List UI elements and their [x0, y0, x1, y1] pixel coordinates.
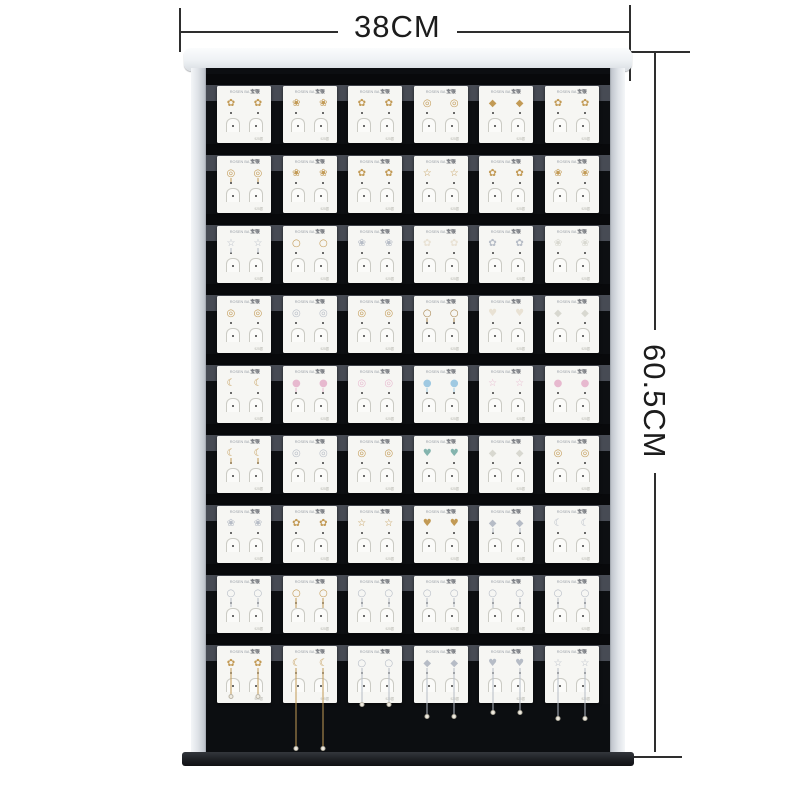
- earring-back-slot: [511, 328, 525, 342]
- card-brand-label: ROSEN BA 宝银: [360, 649, 390, 655]
- earring-left: ♥: [487, 658, 499, 674]
- earring-back-slots: [226, 468, 263, 482]
- card-footnote: 925银: [582, 417, 590, 422]
- earring-left: ❀: [290, 98, 302, 114]
- earring-back-slot: [357, 468, 371, 482]
- earring-dangle: [323, 668, 324, 746]
- earring-pair: ◎ ◎: [225, 168, 264, 184]
- earring-glyph: ❀: [319, 98, 327, 109]
- earring-right: ☆: [252, 238, 264, 254]
- earring-pair: ◎ ◎: [290, 308, 329, 324]
- card-footnote: 925银: [255, 417, 263, 422]
- pin-hole: [257, 392, 259, 394]
- card-brand-label: ROSEN BA 宝银: [557, 229, 587, 235]
- earring-glyph: ✿: [358, 98, 366, 109]
- earring-left: ✿: [225, 658, 237, 674]
- earring-right: ✿: [252, 98, 264, 114]
- earring-left: ●: [421, 378, 433, 394]
- pin-hole: [388, 532, 390, 534]
- earring-back-slots: [291, 538, 328, 552]
- pin-hole: [230, 322, 232, 324]
- card-footnote: 925银: [255, 487, 263, 492]
- earring-card: ROSEN BA 宝银 ☆ ☆ 925银: [545, 646, 599, 703]
- earring-back-slots: [357, 608, 394, 622]
- earring-back-slots: [488, 188, 525, 202]
- pin-hole: [453, 322, 455, 324]
- card-footnote: 925银: [451, 137, 459, 142]
- earring-card: ROSEN BA 宝银 ✿ ✿ 925银: [479, 226, 533, 283]
- card-row: ROSEN BA 宝银 ☾ ☾ 925银 ROSEN BA 宝银 ●: [206, 354, 610, 424]
- card-brand-label: ROSEN BA 宝银: [426, 509, 456, 515]
- card-footnote: 925银: [516, 557, 524, 562]
- earring-back-slot: [314, 538, 328, 552]
- earring-back-slot: [314, 328, 328, 342]
- pin-hole: [557, 322, 559, 324]
- stand-right-rail: [610, 68, 625, 752]
- earring-right: ◆: [514, 98, 526, 114]
- earring-card: ROSEN BA 宝银 ◆ ◆ 925银: [479, 506, 533, 563]
- earring-back-slot: [422, 398, 436, 412]
- earring-left: ♥: [421, 518, 433, 534]
- earring-back-slot: [445, 188, 459, 202]
- card-brand-label: ROSEN BA 宝银: [557, 159, 587, 165]
- earring-back-slot: [511, 398, 525, 412]
- earring-card: ROSEN BA 宝银 ☆ ☆ 925银: [479, 366, 533, 423]
- earring-glyph: ◎: [319, 448, 328, 459]
- earring-back-slots: [357, 188, 394, 202]
- earring-card: ROSEN BA 宝银 ❀ ❀ 925银: [348, 226, 402, 283]
- earring-glyph: ❀: [554, 168, 562, 179]
- earring-back-slot: [488, 538, 502, 552]
- earring-left: ◆: [552, 308, 564, 324]
- card-brand-label: ROSEN BA 宝银: [229, 439, 259, 445]
- earring-left: ✿: [552, 98, 564, 114]
- earring-right: ✿: [514, 238, 526, 254]
- card-footnote: 925银: [320, 557, 328, 562]
- earring-back-slots: [422, 118, 459, 132]
- earring-pair: ◆ ◆: [487, 98, 526, 114]
- earring-back-slot: [511, 188, 525, 202]
- earring-right: ○: [579, 588, 591, 604]
- earring-card: ROSEN BA 宝银 ♥ ♥ 925银: [479, 296, 533, 353]
- earring-back-slot: [249, 468, 263, 482]
- product-photo: 38CM 60.5CM ROSEN BA 宝银 ✿ ✿ 925银: [0, 0, 800, 800]
- earring-right: ❀: [317, 98, 329, 114]
- pin-hole: [388, 322, 390, 324]
- earring-back-slot: [488, 398, 502, 412]
- earring-pair: ♥ ♥: [487, 658, 526, 674]
- earring-pair: ◆ ◆: [487, 448, 526, 464]
- pin-hole: [453, 252, 455, 254]
- dangle-pearl-tip: [228, 694, 233, 699]
- earring-pair: ☆ ☆: [225, 238, 264, 254]
- earring-glyph: ◎: [450, 98, 459, 109]
- earring-dangle: [296, 598, 297, 608]
- earring-back-slot: [226, 538, 240, 552]
- earring-back-slot: [249, 538, 263, 552]
- pin-hole: [322, 462, 324, 464]
- dangle-pearl-tip: [294, 746, 299, 751]
- earring-left: ✿: [356, 98, 368, 114]
- card-brand-label: ROSEN BA 宝银: [360, 369, 390, 375]
- card-brand-label: ROSEN BA 宝银: [360, 439, 390, 445]
- card-footnote: 925银: [451, 207, 459, 212]
- earring-glyph: ◎: [357, 448, 366, 459]
- earring-glyph: ◎: [554, 448, 563, 459]
- earring-back-slot: [226, 258, 240, 272]
- earring-pair: ◎ ◎: [356, 378, 395, 394]
- earring-back-slot: [357, 258, 371, 272]
- card-footnote: 925银: [255, 137, 263, 142]
- earring-back-slot: [226, 678, 240, 692]
- earring-back-slot: [357, 188, 371, 202]
- earring-left: ●: [552, 378, 564, 394]
- earring-left: ○: [421, 588, 433, 604]
- card-brand-label: ROSEN BA 宝银: [491, 649, 521, 655]
- card-footnote: 925银: [385, 627, 393, 632]
- earring-right: ✿: [448, 238, 460, 254]
- card-footnote: 925银: [451, 487, 459, 492]
- earring-back-slots: [422, 258, 459, 272]
- earring-back-slot: [422, 258, 436, 272]
- card-row: ROSEN BA 宝银 ❀ ❀ 925银 ROSEN BA 宝银 ✿: [206, 494, 610, 564]
- earring-card: ROSEN BA 宝银 ✿ ✿ 925银: [217, 86, 271, 143]
- card-row: ROSEN BA 宝银 ○ ○ 925银 ROSEN BA 宝银 ○: [206, 564, 610, 634]
- earring-right: ♥: [514, 308, 526, 324]
- card-brand-label: ROSEN BA 宝银: [557, 579, 587, 585]
- earring-right: ☾: [579, 518, 591, 534]
- earring-right: ○: [383, 658, 395, 674]
- earring-left: ✿: [421, 238, 433, 254]
- earring-glyph: ☆: [450, 168, 459, 179]
- pin-hole: [453, 112, 455, 114]
- earring-card: ROSEN BA 宝银 ☾ ☾ 925银: [217, 436, 271, 493]
- earring-right: ○: [252, 588, 264, 604]
- card-brand-label: ROSEN BA 宝银: [295, 649, 325, 655]
- earring-back-slot: [291, 678, 305, 692]
- earring-back-slots: [291, 608, 328, 622]
- earring-left: ◎: [356, 308, 368, 324]
- earring-right: ✿: [383, 98, 395, 114]
- earring-right: ○: [448, 308, 460, 324]
- earring-glyph: ○: [319, 238, 328, 249]
- earring-dangle: [427, 668, 428, 714]
- earring-glyph: ✿: [488, 238, 496, 249]
- card-footnote: 925银: [320, 697, 328, 702]
- earring-card: ROSEN BA 宝银 ● ● 925银: [414, 366, 468, 423]
- earring-glyph: ◆: [489, 448, 497, 459]
- pin-hole: [426, 322, 428, 324]
- earring-dangle: [492, 598, 493, 608]
- earring-right: ❀: [579, 168, 591, 184]
- earring-left: ☾: [225, 448, 237, 464]
- earring-right: ☆: [448, 168, 460, 184]
- earring-pair: ♥ ♥: [487, 308, 526, 324]
- pin-hole: [453, 392, 455, 394]
- card-footnote: 925银: [385, 697, 393, 702]
- earring-left: ✿: [225, 98, 237, 114]
- earring-back-slots: [488, 398, 525, 412]
- card-footnote: 925银: [582, 697, 590, 702]
- pin-hole: [453, 462, 455, 464]
- pin-hole: [519, 392, 521, 394]
- earring-glyph: ❀: [581, 238, 589, 249]
- earring-back-slot: [422, 468, 436, 482]
- earring-left: ◆: [487, 518, 499, 534]
- earring-back-slot: [314, 468, 328, 482]
- earring-back-slots: [553, 608, 590, 622]
- earring-glyph: ◎: [384, 448, 393, 459]
- earring-card: ROSEN BA 宝银 ◆ ◆ 925银: [479, 86, 533, 143]
- earring-back-slot: [488, 258, 502, 272]
- card-footnote: 925银: [385, 417, 393, 422]
- earring-card: ROSEN BA 宝银 ✿ ✿ 925银: [217, 646, 271, 703]
- card-footnote: 925银: [516, 207, 524, 212]
- earring-back-slots: [357, 258, 394, 272]
- earring-back-slots: [488, 538, 525, 552]
- earring-pair: ◆ ◆: [487, 518, 526, 534]
- earring-back-slots: [357, 538, 394, 552]
- earring-back-slot: [488, 328, 502, 342]
- card-footnote: 925银: [516, 417, 524, 422]
- earring-pair: ○ ○: [290, 238, 329, 254]
- pin-hole: [322, 532, 324, 534]
- card-footnote: 925银: [320, 207, 328, 212]
- earring-card: ROSEN BA 宝银 ◎ ◎ 925银: [348, 436, 402, 493]
- earring-back-slot: [226, 398, 240, 412]
- card-brand-label: ROSEN BA 宝银: [295, 159, 325, 165]
- pin-hole: [230, 182, 232, 184]
- earring-pair: ✿ ✿: [290, 518, 329, 534]
- earring-right: ☆: [514, 378, 526, 394]
- earring-back-slot: [226, 608, 240, 622]
- card-footnote: 925银: [320, 417, 328, 422]
- earring-left: ✿: [487, 168, 499, 184]
- earring-right: ○: [317, 588, 329, 604]
- earring-left: ❀: [552, 168, 564, 184]
- card-footnote: 925银: [320, 277, 328, 282]
- dangle-pearl-tip: [452, 714, 457, 719]
- earring-back-slots: [553, 258, 590, 272]
- earring-dangle: [427, 318, 428, 322]
- earring-back-slots: [357, 398, 394, 412]
- earring-glyph: ☆: [423, 168, 432, 179]
- card-row: ROSEN BA 宝银 ✿ ✿ 925银 ROSEN BA 宝银 ☾: [206, 634, 610, 704]
- earring-back-slot: [291, 398, 305, 412]
- earring-back-slots: [291, 398, 328, 412]
- earring-back-slot: [291, 258, 305, 272]
- earring-left: ☾: [552, 518, 564, 534]
- stand-left-rail: [191, 68, 206, 752]
- pin-hole: [453, 182, 455, 184]
- earring-card: ROSEN BA 宝银 ◎ ◎ 925银: [283, 296, 337, 353]
- card-footnote: 925银: [320, 347, 328, 352]
- earring-pair: ○ ○: [552, 588, 591, 604]
- earring-back-slots: [226, 118, 263, 132]
- card-brand-label: ROSEN BA 宝银: [426, 89, 456, 95]
- earring-back-slot: [226, 118, 240, 132]
- earring-glyph: ☾: [226, 378, 235, 389]
- card-footnote: 925银: [451, 697, 459, 702]
- earring-left: ◎: [356, 378, 368, 394]
- earring-back-slot: [291, 608, 305, 622]
- earring-glyph: ❀: [292, 98, 300, 109]
- earring-right: ◆: [514, 448, 526, 464]
- pin-hole: [519, 182, 521, 184]
- earring-right: ✿: [579, 98, 591, 114]
- earring-pair: ☾ ☾: [290, 658, 329, 674]
- earring-dangle: [585, 598, 586, 608]
- pin-hole: [361, 182, 363, 184]
- card-brand-label: ROSEN BA 宝银: [360, 579, 390, 585]
- card-brand-label: ROSEN BA 宝银: [229, 509, 259, 515]
- earring-right: ◎: [448, 98, 460, 114]
- earring-back-slot: [445, 608, 459, 622]
- earring-left: ◎: [290, 308, 302, 324]
- earring-pair: ❀ ❀: [290, 98, 329, 114]
- earring-back-slot: [380, 328, 394, 342]
- earring-left: ☾: [225, 378, 237, 394]
- earring-pair: ◎ ◎: [356, 308, 395, 324]
- earring-back-slot: [511, 608, 525, 622]
- card-row: ROSEN BA 宝银 ✿ ✿ 925银 ROSEN BA 宝银 ❀: [206, 74, 610, 144]
- width-dimension-tick-left: [179, 8, 181, 52]
- earring-pair: ☆ ☆: [552, 658, 591, 674]
- earring-right: ○: [383, 588, 395, 604]
- display-stand: ROSEN BA 宝银 ✿ ✿ 925银 ROSEN BA 宝银 ❀: [191, 68, 625, 752]
- dangle-pearl-tip: [583, 716, 588, 721]
- earring-glyph: ☆: [357, 518, 366, 529]
- earring-right: ☾: [252, 448, 264, 464]
- earring-card: ROSEN BA 宝银 ❀ ❀ 925银: [283, 86, 337, 143]
- pin-hole: [361, 462, 363, 464]
- earring-back-slot: [422, 678, 436, 692]
- pin-hole: [492, 252, 494, 254]
- earring-right: ◎: [383, 378, 395, 394]
- earring-card: ROSEN BA 宝银 ◆ ◆ 925银: [414, 646, 468, 703]
- earring-back-slot: [445, 468, 459, 482]
- earring-right: ☾: [317, 658, 329, 674]
- earring-back-slot: [553, 118, 567, 132]
- earring-glyph: ✿: [358, 168, 366, 179]
- earring-back-slot: [249, 258, 263, 272]
- earring-card: ROSEN BA 宝银 ◎ ◎ 925银: [545, 436, 599, 493]
- earring-left: ◆: [421, 658, 433, 674]
- earring-glyph: ◎: [292, 448, 301, 459]
- earring-glyph: ❀: [581, 168, 589, 179]
- card-footnote: 925银: [582, 347, 590, 352]
- stand-base: [182, 752, 634, 766]
- earring-glyph: ◎: [384, 308, 393, 319]
- pin-hole: [388, 392, 390, 394]
- earring-left: ●: [290, 378, 302, 394]
- card-brand-label: ROSEN BA 宝银: [426, 299, 456, 305]
- earring-dangle: [361, 598, 362, 607]
- pin-hole: [519, 112, 521, 114]
- earring-back-slot: [553, 468, 567, 482]
- earring-back-slots: [226, 258, 263, 272]
- earring-pair: ☆ ☆: [421, 168, 460, 184]
- card-footnote: 925银: [451, 557, 459, 562]
- pin-hole: [257, 532, 259, 534]
- pin-hole: [492, 182, 494, 184]
- earring-dangle: [323, 388, 324, 392]
- earring-glyph: ✿: [292, 518, 300, 529]
- earring-card: ROSEN BA 宝银 ☆ ☆ 925银: [414, 156, 468, 213]
- pin-hole: [361, 112, 363, 114]
- height-dimension-tick-top: [624, 51, 690, 53]
- earring-glyph: ☆: [384, 518, 393, 529]
- earring-back-slot: [357, 118, 371, 132]
- pin-hole: [361, 392, 363, 394]
- card-footnote: 925银: [451, 627, 459, 632]
- earring-pair: ☆ ☆: [487, 378, 526, 394]
- pin-hole: [230, 392, 232, 394]
- earring-card: ROSEN BA 宝银 ❀ ❀ 925银: [545, 156, 599, 213]
- pin-hole: [295, 182, 297, 184]
- earring-back-slot: [553, 608, 567, 622]
- earring-left: ◎: [225, 168, 237, 184]
- earring-back-slots: [553, 328, 590, 342]
- earring-back-slots: [357, 118, 394, 132]
- pin-hole: [492, 322, 494, 324]
- earring-back-slot: [422, 328, 436, 342]
- earring-back-slot: [576, 258, 590, 272]
- earring-right: ●: [579, 378, 591, 394]
- earring-glyph: ♥: [515, 308, 524, 319]
- earring-dangle: [361, 668, 362, 702]
- earring-back-slot: [488, 608, 502, 622]
- card-brand-label: ROSEN BA 宝银: [557, 369, 587, 375]
- earring-back-slots: [226, 538, 263, 552]
- earring-card: ROSEN BA 宝银 ◎ ◎ 925银: [414, 86, 468, 143]
- earring-back-slots: [422, 398, 459, 412]
- earring-card: ROSEN BA 宝银 ◎ ◎ 925银: [348, 296, 402, 353]
- earring-back-slots: [226, 328, 263, 342]
- earring-back-slot: [226, 188, 240, 202]
- earring-back-slot: [357, 608, 371, 622]
- earring-back-slots: [422, 608, 459, 622]
- card-brand-label: ROSEN BA 宝银: [491, 369, 521, 375]
- pin-hole: [322, 182, 324, 184]
- width-dimension-tick-right: [629, 5, 631, 81]
- earring-glyph: ◎: [227, 308, 236, 319]
- earring-glyph: ◎: [357, 378, 366, 389]
- card-footnote: 925银: [385, 277, 393, 282]
- earring-right: ●: [317, 378, 329, 394]
- card-footnote: 925银: [385, 207, 393, 212]
- earring-right: ◎: [383, 448, 395, 464]
- earring-back-slot: [291, 328, 305, 342]
- card-footnote: 925银: [385, 557, 393, 562]
- earring-card: ROSEN BA 宝银 ○ ○ 925银: [545, 576, 599, 633]
- card-footnote: 925银: [516, 487, 524, 492]
- earring-back-slots: [422, 468, 459, 482]
- pin-hole: [584, 112, 586, 114]
- dangle-pearl-tip: [517, 710, 522, 715]
- earring-left: ◎: [421, 98, 433, 114]
- earring-dangle: [257, 598, 258, 607]
- earring-back-slot: [249, 608, 263, 622]
- earring-glyph: ❀: [385, 238, 393, 249]
- height-dimension-label: 60.5CM: [636, 330, 672, 473]
- card-row: ROSEN BA 宝银 ◎ ◎ 925银 ROSEN BA 宝银 ❀: [206, 144, 610, 214]
- earring-dangle: [257, 178, 258, 182]
- earring-right: ☾: [252, 378, 264, 394]
- earring-back-slot: [445, 678, 459, 692]
- card-brand-label: ROSEN BA 宝银: [229, 229, 259, 235]
- earring-left: ❀: [290, 168, 302, 184]
